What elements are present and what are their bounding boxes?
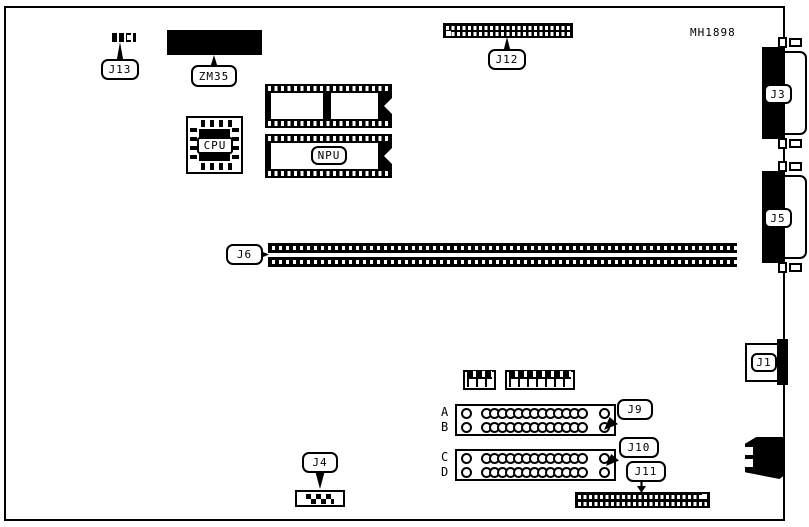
j11-header <box>575 492 710 508</box>
j4-connector <box>295 490 345 507</box>
j3-label: J3 <box>764 84 792 104</box>
cpu-pads-right <box>232 126 239 164</box>
jumper-block-small <box>463 370 496 390</box>
socket-row-c <box>461 452 610 465</box>
zm35-callout: ZM35 <box>191 65 237 87</box>
j12-header <box>443 23 573 38</box>
j5-screw-tab <box>778 262 787 273</box>
j5-screw-tab <box>789 162 802 171</box>
zm35-chip <box>167 30 262 55</box>
socket-hole <box>599 408 610 419</box>
socket-row-d <box>461 466 610 479</box>
socket-hole <box>461 467 472 478</box>
j9-callout: J9 <box>617 399 653 420</box>
socket-hole <box>461 408 472 419</box>
socket-hole <box>599 467 610 478</box>
j3-screw-tab <box>778 37 787 48</box>
row-label-a: A <box>441 405 448 419</box>
cpu-pads-left <box>190 126 197 164</box>
socket-window <box>271 93 323 119</box>
j3-screw-tab <box>789 139 802 148</box>
j10-callout: J10 <box>619 437 659 458</box>
socket-hole <box>577 467 588 478</box>
dip-socket-upper <box>265 84 392 128</box>
socket-hole <box>461 453 472 464</box>
j12-callout: J12 <box>488 49 526 70</box>
j4-callout: J4 <box>302 452 338 473</box>
socket-notch <box>383 147 393 165</box>
socket-hole <box>577 422 588 433</box>
pin1-marker <box>702 494 707 499</box>
j6-callout: J6 <box>226 244 263 265</box>
row-label-c: C <box>441 450 448 464</box>
keyboard-din-connector <box>745 437 785 479</box>
socket-block-cd <box>455 449 616 481</box>
socket-row-a <box>461 407 610 420</box>
j5-screw-tab <box>778 161 787 172</box>
npu-label: NPU <box>311 146 347 165</box>
socket-row-b <box>461 421 610 434</box>
din-notch <box>745 447 753 455</box>
j13-jumper <box>112 33 136 42</box>
j3-screw-tab <box>789 38 802 47</box>
j11-callout: J11 <box>626 461 666 482</box>
socket-block-ab <box>455 404 616 436</box>
jumper-block-large <box>505 370 575 390</box>
j1-edge-stripe <box>777 339 788 385</box>
j1-label: J1 <box>751 353 777 372</box>
row-label-b: B <box>441 420 448 434</box>
cpu-pads-top <box>196 120 233 127</box>
row-label-d: D <box>441 465 448 479</box>
socket-hole <box>577 408 588 419</box>
motherboard-diagram: MH1898 J13 ZM35 CPU NPU J12 J3 <box>0 0 809 527</box>
j5-screw-tab <box>789 263 802 272</box>
cpu-pads-bottom <box>196 163 233 170</box>
j6-slot <box>268 243 737 267</box>
socket-notch <box>383 97 393 115</box>
pin1-marker <box>446 31 451 36</box>
j5-label: J5 <box>764 208 792 228</box>
socket-window <box>331 93 378 119</box>
cpu-label: CPU <box>197 137 233 154</box>
din-notch <box>745 459 753 467</box>
j3-screw-tab <box>778 138 787 149</box>
socket-hole <box>577 453 588 464</box>
part-number-text: MH1898 <box>690 26 736 39</box>
j13-callout: J13 <box>101 59 139 80</box>
socket-hole <box>461 422 472 433</box>
